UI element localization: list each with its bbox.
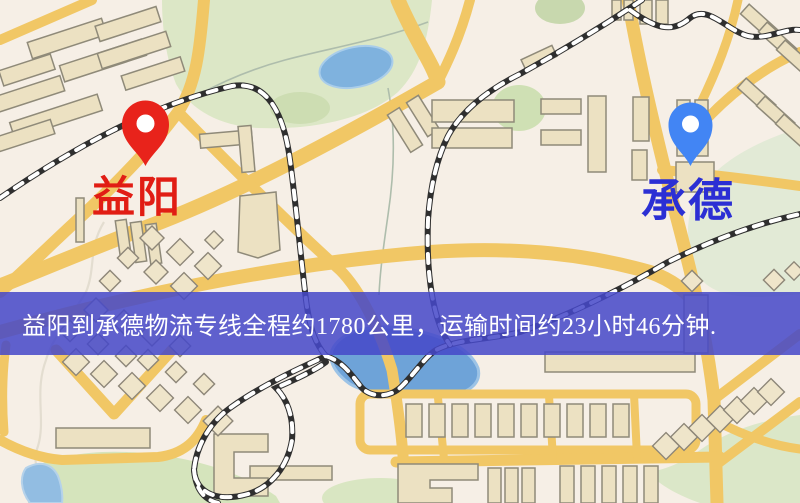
map-canvas: 益阳 承德 益阳到承德物流专线全程约1780公里，运输时间约23小时46分钟. bbox=[0, 0, 800, 503]
map-image bbox=[0, 0, 800, 503]
route-info-text: 益阳到承德物流专线全程约1780公里，运输时间约23小时46分钟. bbox=[0, 306, 717, 341]
route-info-banner: 益阳到承德物流专线全程约1780公里，运输时间约23小时46分钟. bbox=[0, 292, 800, 355]
origin-city-label: 益阳 bbox=[92, 177, 182, 220]
dest-city-label: 承德 bbox=[641, 179, 735, 224]
